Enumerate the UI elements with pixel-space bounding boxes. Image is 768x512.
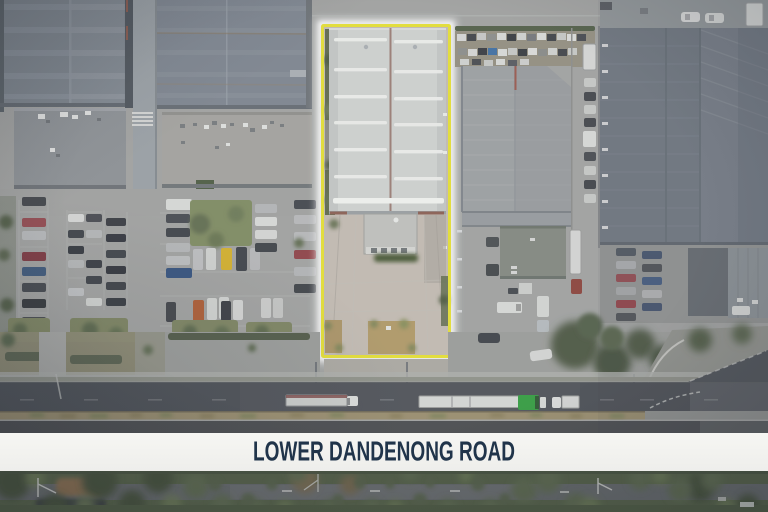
svg-text:LOWER DANDENONG ROAD: LOWER DANDENONG ROAD	[253, 436, 515, 467]
